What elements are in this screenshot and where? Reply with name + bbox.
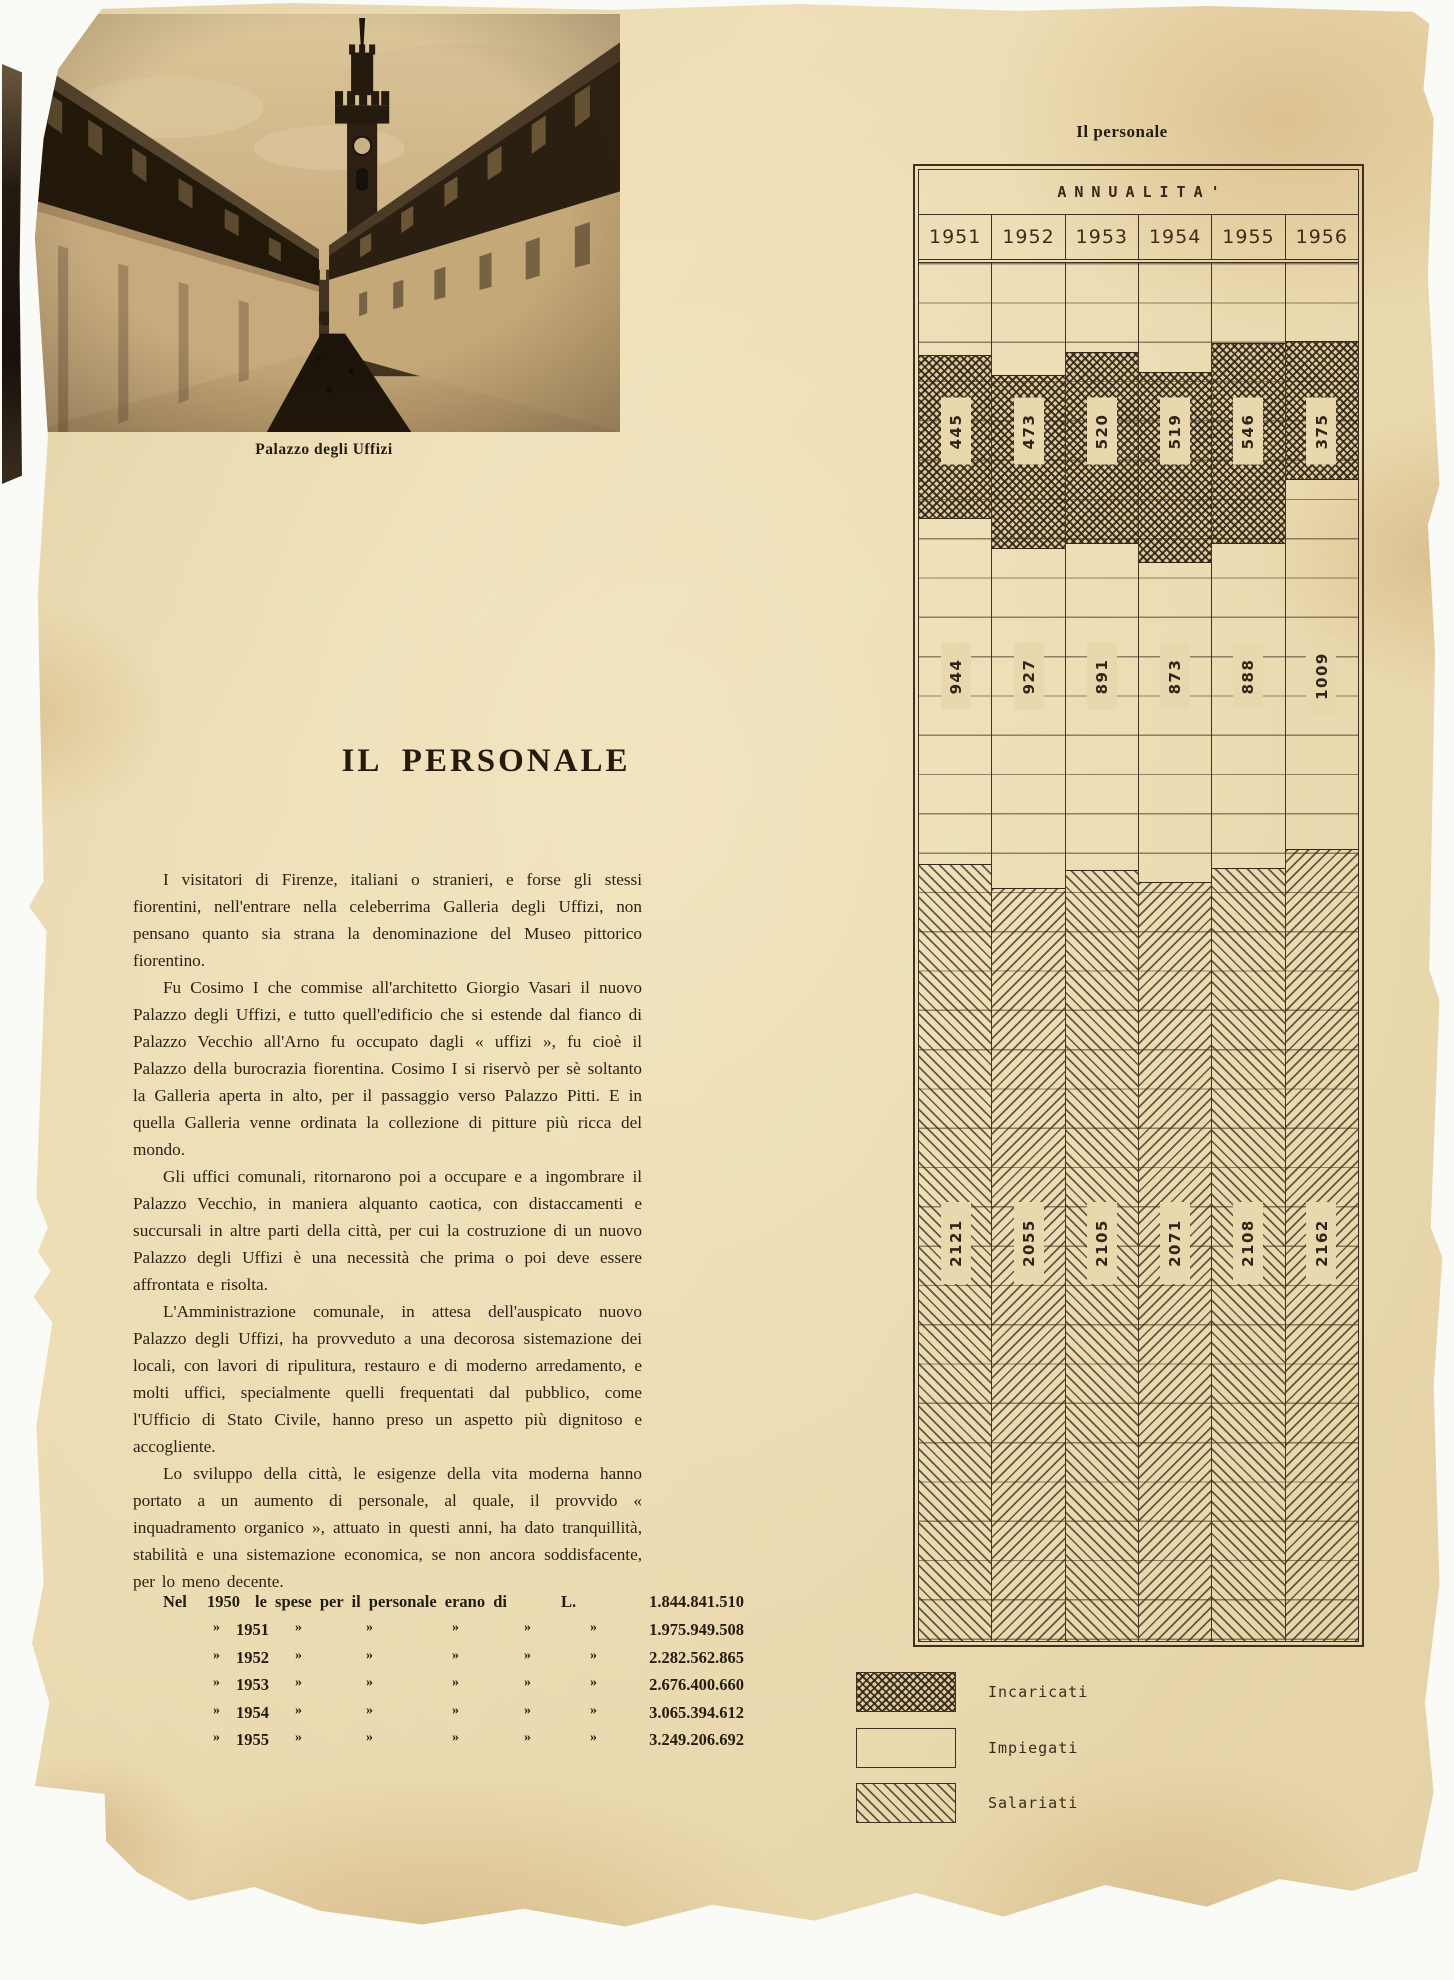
bar-segment-incaricati (992, 375, 1064, 548)
expense-row: »1955»»»»»3.249.206.692 (0, 1730, 744, 1754)
ditto-mark: » (366, 1620, 373, 1636)
bar-segment-salariati (919, 864, 991, 1641)
ditto-mark: » (366, 1730, 373, 1746)
bar-segment-impiegati (992, 548, 1064, 888)
chart-title: ANNUALITA' (919, 170, 1358, 215)
expense-year: 1951 (236, 1620, 269, 1640)
expense-lead: Nel (163, 1592, 187, 1612)
ditto-mark: » (213, 1620, 220, 1636)
expense-phrase: le spese per il personale erano di (255, 1592, 507, 1612)
ditto-mark: » (524, 1620, 531, 1636)
ditto-mark: » (295, 1730, 302, 1746)
bar-segment-incaricati (1139, 372, 1211, 562)
ditto-mark: » (213, 1730, 220, 1746)
bar-segment-salariati (1066, 870, 1138, 1641)
legend-label: Impiegati (988, 1739, 1078, 1757)
chart-year-row: 195119521953195419551956 (919, 215, 1358, 263)
ditto-mark: » (452, 1648, 459, 1664)
legend-label: Salariati (988, 1794, 1078, 1812)
chart-year-label: 1956 (1286, 215, 1358, 259)
ditto-mark: » (452, 1675, 459, 1691)
bar-segment-impiegati (1066, 543, 1138, 870)
adjacent-page-edge (2, 64, 22, 484)
uffizi-photo-art (28, 14, 620, 432)
ditto-mark: » (452, 1730, 459, 1746)
expense-year: 1955 (236, 1730, 269, 1750)
photo-caption: Palazzo degli Uffizi (28, 441, 620, 459)
article-paragraph: Lo sviluppo della città, le esigenze del… (133, 1460, 642, 1595)
expense-value: 1.844.841.510 (598, 1592, 744, 1612)
ditto-mark: » (295, 1703, 302, 1719)
article-paragraph: L'Amministrazione comunale, in attesa de… (133, 1298, 642, 1460)
chart-column (1286, 263, 1358, 1641)
ditto-mark: » (524, 1648, 531, 1664)
chart-columns (919, 263, 1358, 1641)
plain-swatch (856, 1728, 956, 1768)
expense-value: 3.065.394.612 (598, 1703, 744, 1723)
running-head: Il personale (1032, 122, 1212, 142)
ditto-mark: » (366, 1648, 373, 1664)
ditto-mark: » (590, 1675, 597, 1691)
expense-row: Nel 1950 le spese per il personale erano… (0, 1592, 744, 1616)
chart-inner-frame: ANNUALITA' 195119521953195419551956 4454… (918, 169, 1359, 1642)
ditto-mark: » (590, 1648, 597, 1664)
bar-segment-incaricati (919, 355, 991, 518)
ditto-mark: » (366, 1675, 373, 1691)
personnel-chart: ANNUALITA' 195119521953195419551956 4454… (913, 164, 1364, 1647)
bar-segment-impiegati (1286, 479, 1358, 849)
bar-segment-impiegati (1139, 562, 1211, 882)
chart-legend: IncaricatiImpiegatiSalariati (856, 1672, 1286, 1872)
ditto-mark: » (524, 1730, 531, 1746)
expense-value: 2.676.400.660 (598, 1675, 744, 1695)
article-paragraph: I visitatori di Firenze, italiani o stra… (133, 866, 642, 974)
ditto-mark: » (213, 1648, 220, 1664)
expense-row: »1953»»»»»2.676.400.660 (0, 1675, 744, 1699)
bar-segment-incaricati (1286, 341, 1358, 478)
bar-segment-incaricati (1212, 343, 1284, 543)
chart-column (1066, 263, 1139, 1641)
article-paragraph: Gli uffici comunali, ritornarono poi a o… (133, 1163, 642, 1298)
expense-year: 1954 (236, 1703, 269, 1723)
expense-row: »1954»»»»»3.065.394.612 (0, 1703, 744, 1727)
legend-label: Incaricati (988, 1683, 1088, 1701)
ditto-mark: » (213, 1703, 220, 1719)
ditto-mark: » (590, 1730, 597, 1746)
ditto-mark: » (590, 1620, 597, 1636)
chart-plot: 4454735205195463759449278918738881009212… (919, 263, 1358, 1641)
expense-row: »1951»»»»»1.975.949.508 (0, 1620, 744, 1644)
uffizi-photo (28, 14, 620, 432)
legend-item: Salariati (856, 1783, 1286, 1825)
ditto-mark: » (213, 1675, 220, 1691)
chart-column (919, 263, 992, 1641)
ditto-mark: » (524, 1703, 531, 1719)
expense-year: 1952 (236, 1648, 269, 1668)
ditto-mark: » (452, 1620, 459, 1636)
chart-year-label: 1952 (992, 215, 1065, 259)
article-paragraph: Fu Cosimo I che commise all'architetto G… (133, 974, 642, 1163)
bar-segment-impiegati (1212, 543, 1284, 868)
bar-segment-salariati (1286, 849, 1358, 1641)
bar-segment-salariati (992, 888, 1064, 1641)
ditto-mark: » (452, 1703, 459, 1719)
chart-column (1212, 263, 1285, 1641)
page-paper: Palazzo degli Uffizi Il personale IL PER… (0, 0, 1454, 1980)
ditto-mark: » (524, 1675, 531, 1691)
expense-currency: L. (561, 1592, 576, 1612)
expense-row: »1952»»»»»2.282.562.865 (0, 1648, 744, 1672)
ditto-mark: » (295, 1648, 302, 1664)
bar-segment-salariati (1212, 868, 1284, 1641)
chart-year-label: 1951 (919, 215, 992, 259)
expense-year: 1950 (207, 1592, 240, 1612)
legend-item: Impiegati (856, 1728, 1286, 1770)
article-body: I visitatori di Firenze, italiani o stra… (133, 866, 642, 1595)
bar-segment-incaricati (1066, 352, 1138, 543)
chart-year-label: 1954 (1139, 215, 1212, 259)
ditto-mark: » (590, 1703, 597, 1719)
expense-value: 2.282.562.865 (598, 1648, 744, 1668)
bar-segment-salariati (1139, 882, 1211, 1641)
crosshatch-swatch (856, 1672, 956, 1712)
diagonal-swatch (856, 1783, 956, 1823)
chart-year-label: 1953 (1066, 215, 1139, 259)
bar-segment-impiegati (919, 518, 991, 864)
ditto-mark: » (295, 1620, 302, 1636)
legend-item: Incaricati (856, 1672, 1286, 1714)
expense-value: 3.249.206.692 (598, 1730, 744, 1750)
ditto-mark: » (366, 1703, 373, 1719)
article-title: IL PERSONALE (330, 743, 642, 780)
expense-value: 1.975.949.508 (598, 1620, 744, 1640)
chart-year-label: 1955 (1212, 215, 1285, 259)
chart-column (992, 263, 1065, 1641)
chart-column (1139, 263, 1212, 1641)
ditto-mark: » (295, 1675, 302, 1691)
expense-year: 1953 (236, 1675, 269, 1695)
